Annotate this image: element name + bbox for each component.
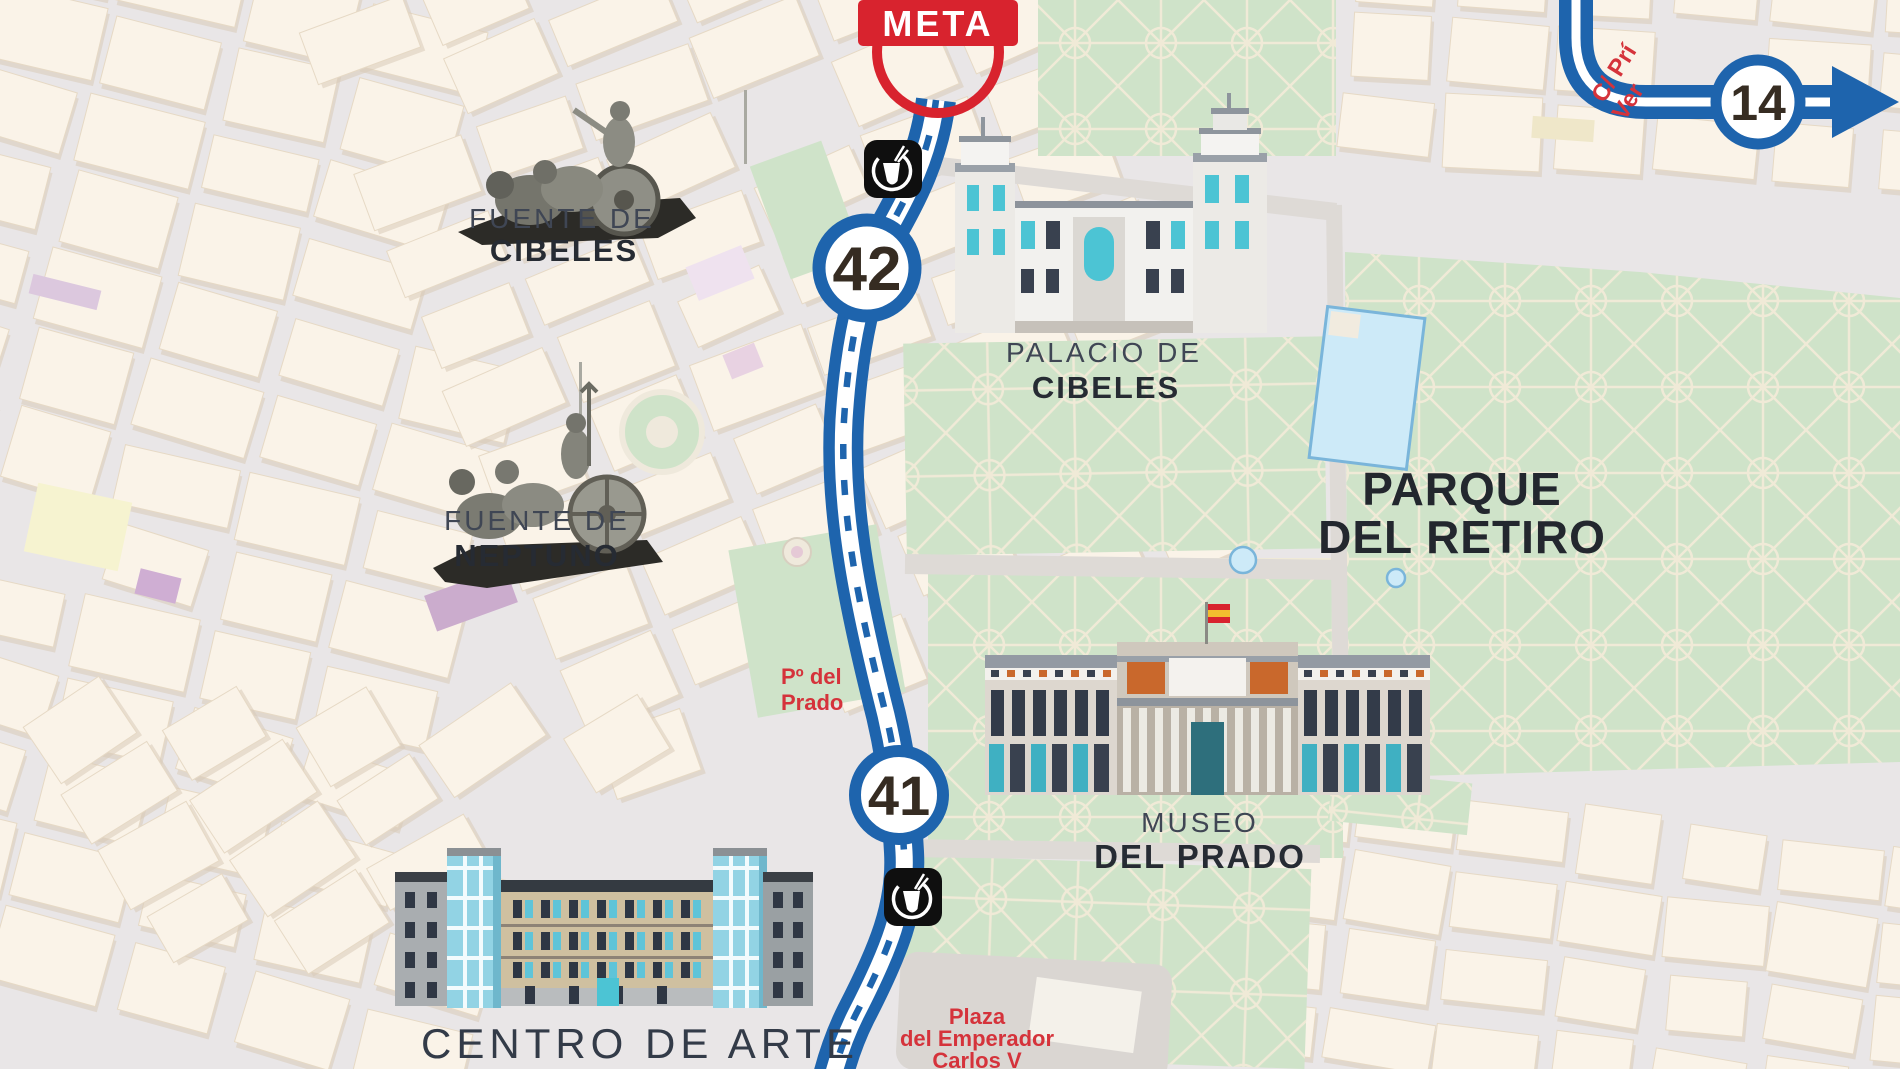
label-line: NEPTUNO	[454, 538, 620, 573]
km-marker-41-value: 41	[868, 764, 930, 827]
label-line: CIBELES	[490, 233, 638, 268]
map-canvas: META 42 41 14	[0, 0, 1900, 1069]
label-line: FUENTE DE	[444, 505, 630, 536]
label-palacio-cibeles: PALACIO DE CIBELES	[1006, 337, 1202, 405]
drink-station-icon	[864, 140, 922, 198]
street-label-paseo-del-prado: Pº del Prado	[781, 664, 843, 715]
label-fuente-neptuno: FUENTE DE NEPTUNO	[444, 505, 630, 573]
madrid-route-map: META 42 41 14	[0, 0, 1900, 1069]
finish-label: META	[882, 3, 993, 44]
label-line: MUSEO	[1141, 807, 1259, 838]
label-line: CIBELES	[1032, 370, 1180, 405]
street-label-line: Carlos V	[932, 1048, 1022, 1069]
km-marker-14-value: 14	[1730, 75, 1786, 131]
label-fuente-cibeles: FUENTE DE CIBELES	[469, 203, 655, 268]
km-marker-14: 14	[1716, 60, 1800, 144]
label-line: PALACIO DE	[1006, 337, 1202, 368]
drink-station-icon	[884, 868, 942, 926]
label-line: DEL PRADO	[1094, 838, 1306, 875]
label-line: FUENTE DE	[469, 203, 655, 234]
km-marker-42: 42	[819, 220, 915, 316]
km-marker-41: 41	[855, 751, 943, 839]
label-line: PARQUE	[1362, 463, 1561, 515]
km-marker-42-value: 42	[833, 235, 902, 304]
street-label-line: Pº del	[781, 664, 842, 689]
label-centro-arte: CENTRO DE ARTE	[421, 1020, 859, 1067]
label-line: CENTRO DE ARTE	[421, 1020, 859, 1067]
street-label-line: Prado	[781, 690, 843, 715]
label-line: DEL RETIRO	[1318, 511, 1606, 563]
